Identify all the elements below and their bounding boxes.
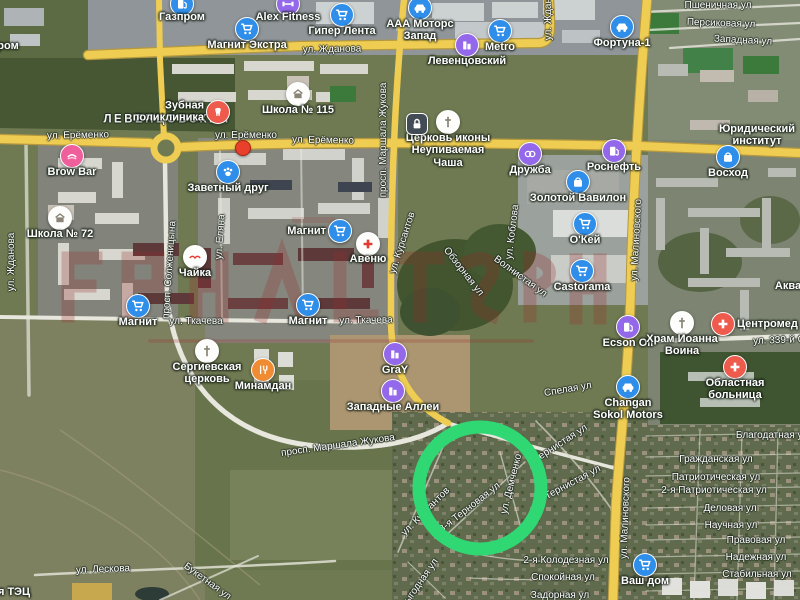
street-label: ул. 339-й С (753, 335, 800, 347)
street-label: ул. Жданова (544, 0, 554, 40)
poi-label[interactable]: Западные Аллеи (347, 401, 440, 413)
cart-icon[interactable] (330, 3, 354, 27)
poi-label[interactable]: Ваш дом (621, 575, 669, 587)
street-label: ул. Малиновского (630, 199, 644, 281)
cart-icon[interactable] (328, 219, 352, 243)
poi-label[interactable]: Золотой Вавилон (530, 192, 626, 204)
poi-label[interactable]: Центромед (737, 318, 798, 330)
street-label: 2-я Патриотическая ул (661, 486, 767, 496)
street-label: Персиковая ул (687, 18, 756, 30)
cart-icon[interactable] (235, 17, 259, 41)
street-label: ул. Ерёменко (215, 131, 277, 141)
poi-label[interactable]: Храм ИоаннаВоина (646, 333, 718, 358)
street-label: ул. Курсантов (388, 211, 417, 275)
car-icon[interactable] (610, 15, 634, 39)
cart-icon[interactable] (573, 212, 597, 236)
poi-label[interactable]: Castorama (554, 281, 611, 293)
poi-label[interactable]: Роснефть (587, 161, 641, 173)
bag-icon[interactable] (716, 145, 740, 169)
street-label: Благодатная ул (736, 431, 800, 441)
street-label: Деловая ул (703, 504, 756, 514)
street-label: Спелая ул (543, 381, 592, 399)
map-labels: ул. Ждановаул. Ждановаул. ЖдановаПшеничн… (0, 0, 800, 600)
poi-label[interactable]: ром (0, 40, 19, 52)
street-label: просп. Солженицына (162, 221, 179, 320)
poi-label[interactable]: Восход (708, 167, 748, 179)
location-marker[interactable] (235, 140, 251, 156)
poi-label[interactable]: Областнаябольница (706, 377, 765, 402)
street-label: ул. Жданова (303, 44, 362, 55)
church-icon[interactable] (670, 311, 694, 335)
street-label: Правовая ул (727, 536, 786, 546)
paw-icon[interactable] (216, 160, 240, 184)
poi-label[interactable]: Школа № 72 (27, 228, 94, 240)
poi-label[interactable]: ChanganSokol Motors (593, 397, 663, 422)
church-icon[interactable] (436, 110, 460, 134)
street-label: Тернистая ул (532, 423, 589, 465)
cart-icon[interactable] (126, 294, 150, 318)
poi-label[interactable]: Юридическийинститут (719, 123, 795, 148)
poi-label[interactable]: Фортуна-1 (593, 37, 650, 49)
poi-label[interactable]: ААА МоторсЗапад (386, 18, 453, 43)
street-label: Пшеничная ул (685, 1, 752, 11)
street-label: Стабильная ул (722, 570, 792, 580)
car-icon[interactable] (408, 0, 432, 20)
street-label: ул. Коблова (505, 204, 522, 260)
lock-icon[interactable] (406, 113, 428, 135)
school-icon[interactable] (286, 82, 310, 106)
street-label: ул. Еляна (214, 214, 227, 260)
street-label: ул. Жданова (7, 233, 17, 292)
car-icon[interactable] (616, 375, 640, 399)
street-label: Волнистая ул (492, 254, 549, 299)
street-label: Надежная ул (726, 553, 787, 563)
school-icon[interactable] (48, 206, 72, 230)
street-label: Гражданская ул (679, 455, 753, 465)
cart-icon[interactable] (488, 19, 512, 43)
street-label: Западная ул (714, 34, 773, 47)
tooth-icon[interactable] (206, 100, 230, 124)
satellite-map[interactable]: ул. Ждановаул. Ждановаул. ЖдановаПшеничн… (0, 0, 800, 600)
poi-label[interactable]: Заветный друг (187, 182, 268, 194)
poi-label[interactable]: GraY (382, 364, 408, 376)
poi-label[interactable]: Левенцовский (428, 55, 506, 67)
poi-label[interactable]: Brow Bar (48, 166, 97, 178)
street-label: Спокойная ул (531, 573, 595, 583)
complex-icon[interactable] (383, 342, 407, 366)
complex-icon[interactable] (455, 33, 479, 57)
street-label: ул. Ерёменко (292, 135, 354, 146)
poi-label[interactable]: Сергиевскаяцерковь (173, 361, 242, 386)
street-label: ул. Демченко (500, 453, 525, 515)
poi-label[interactable]: Дружба (509, 164, 550, 176)
food-icon[interactable] (251, 358, 275, 382)
street-label: просп. Маршала Жукова (379, 83, 389, 198)
poi-label[interactable]: Магнит (289, 315, 328, 327)
cart-icon[interactable] (633, 553, 657, 577)
poi-label[interactable]: О'Кей (570, 234, 601, 246)
poi-label[interactable]: Минамдан (235, 380, 292, 392)
bird-icon[interactable] (183, 245, 207, 269)
street-label: просп. Маршала Жукова (280, 433, 395, 459)
bag-icon[interactable] (566, 170, 590, 194)
church-icon[interactable] (195, 339, 219, 363)
street-label: ул. Ерёменко (47, 130, 109, 141)
street-label: Научная ул (705, 521, 758, 531)
complex-icon[interactable] (381, 379, 405, 403)
cinema-icon[interactable] (518, 142, 542, 166)
street-label: ул. Ткачева (339, 316, 392, 327)
street-label: ул. Малиновского (620, 477, 633, 559)
street-label: Букетная ул (182, 562, 233, 600)
street-label: 2-я Колодезная ул (523, 556, 608, 566)
beauty-icon[interactable] (60, 144, 84, 168)
poi-label[interactable]: Школа № 115 (262, 104, 334, 116)
poi-label[interactable]: Магнит (287, 225, 326, 237)
hospital-icon[interactable] (723, 355, 747, 379)
street-label: Обзорная ул (441, 246, 485, 298)
fuel-icon[interactable] (616, 315, 640, 339)
fuel-icon[interactable] (602, 139, 626, 163)
poi-label[interactable]: Аква (775, 280, 800, 292)
street-label: Тернистая ул (543, 464, 602, 502)
poi-label[interactable]: Alex Fitness (256, 11, 321, 23)
street-label: ул. Ткачева (169, 317, 222, 327)
street-label: Задорная ул (531, 591, 589, 600)
poi-label[interactable]: я ТЭЦ (0, 586, 30, 598)
street-label: ул. Лескова (76, 564, 130, 576)
street-label: Выгодная ул (399, 557, 441, 600)
cart-icon[interactable] (570, 259, 594, 283)
poi-label[interactable]: Авеню (350, 253, 387, 265)
street-label: Патриотическая ул (672, 473, 761, 483)
poi-label[interactable]: Чайка (179, 267, 211, 279)
poi-label[interactable]: Гипер Лента (308, 25, 375, 37)
poi-label[interactable]: Газпром (159, 11, 205, 23)
poi-label[interactable]: Metro (485, 41, 515, 53)
poi-label[interactable]: Церковь иконыНеупиваемаяЧаша (406, 132, 491, 169)
cart-icon[interactable] (296, 293, 320, 317)
poi-label[interactable]: Зубнаяполиклиника (133, 100, 204, 125)
poi-label[interactable]: Магнит Экстра (207, 39, 286, 51)
poi-label[interactable]: Магнит (119, 316, 158, 328)
